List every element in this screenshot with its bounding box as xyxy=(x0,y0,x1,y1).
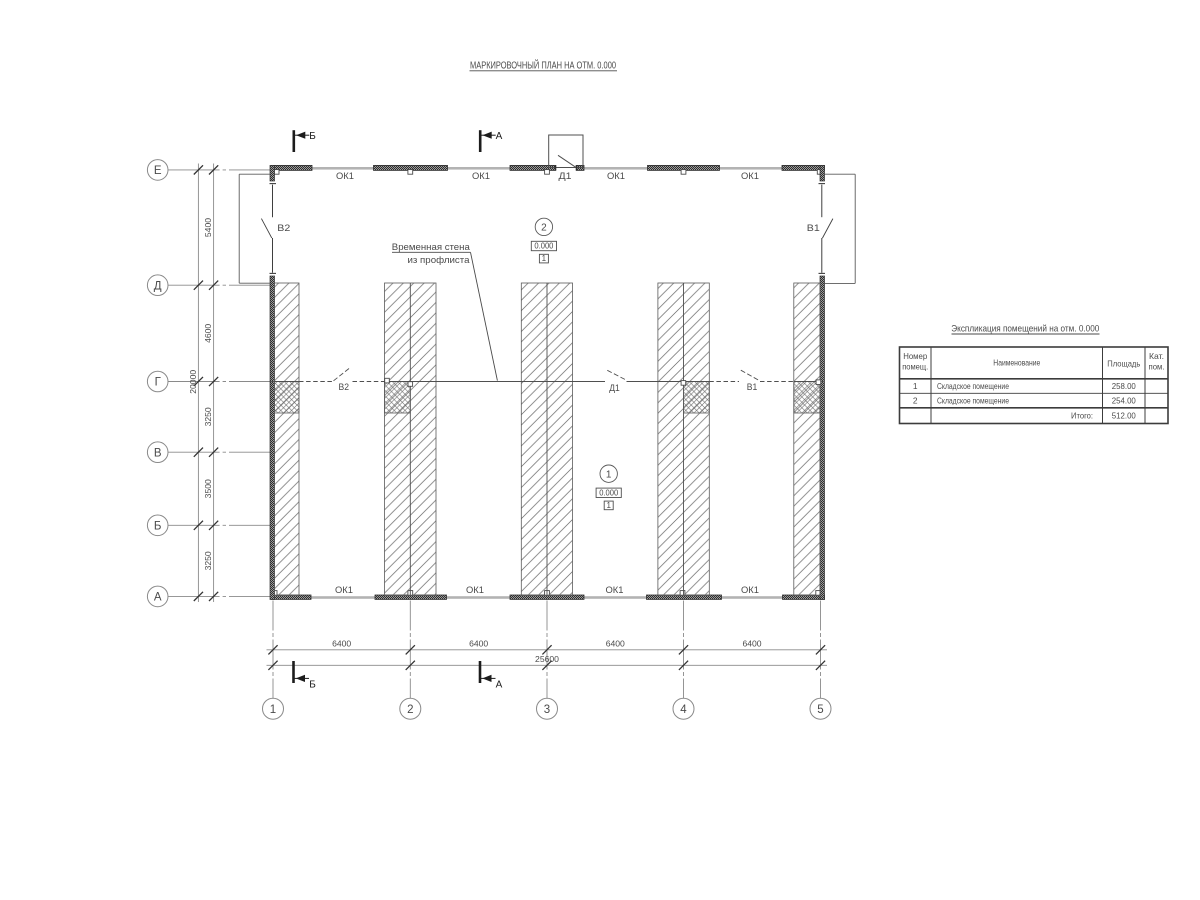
svg-text:Складское помещение: Складское помещение xyxy=(937,396,1009,406)
svg-text:2: 2 xyxy=(407,704,413,716)
svg-text:3500: 3500 xyxy=(203,479,213,498)
svg-text:Г: Г xyxy=(155,377,162,389)
svg-text:0.000: 0.000 xyxy=(534,242,554,251)
svg-text:1: 1 xyxy=(913,381,918,391)
svg-text:1: 1 xyxy=(606,469,612,480)
svg-text:МАРКИРОВОЧНЫЙ ПЛАН НА ОТМ. 0.0: МАРКИРОВОЧНЫЙ ПЛАН НА ОТМ. 0.000 xyxy=(470,59,616,72)
svg-text:6400: 6400 xyxy=(332,638,351,648)
svg-text:А: А xyxy=(154,592,162,604)
svg-text:0.000: 0.000 xyxy=(599,489,619,498)
svg-text:Б: Б xyxy=(154,521,162,533)
svg-text:Е: Е xyxy=(154,165,162,177)
svg-text:Складское помещение: Складское помещение xyxy=(937,381,1009,391)
svg-text:4600: 4600 xyxy=(203,324,213,343)
svg-text:2: 2 xyxy=(541,223,547,234)
svg-text:2: 2 xyxy=(913,396,918,406)
svg-text:Д: Д xyxy=(154,280,162,292)
svg-text:Б: Б xyxy=(309,131,316,142)
svg-text:1: 1 xyxy=(270,704,276,716)
svg-text:ОК1: ОК1 xyxy=(472,171,490,181)
svg-text:В2: В2 xyxy=(339,382,350,392)
svg-text:В2: В2 xyxy=(277,223,290,233)
svg-text:ОК1: ОК1 xyxy=(606,585,624,595)
svg-text:Кат.: Кат. xyxy=(1149,351,1164,361)
svg-text:1: 1 xyxy=(606,501,611,510)
svg-text:6400: 6400 xyxy=(469,638,488,648)
svg-text:пом.: пом. xyxy=(1149,362,1165,372)
svg-text:ОК1: ОК1 xyxy=(336,171,354,181)
svg-text:помещ.: помещ. xyxy=(902,362,928,372)
svg-text:Д1: Д1 xyxy=(559,171,572,181)
svg-text:ОК1: ОК1 xyxy=(466,585,484,595)
svg-text:Б: Б xyxy=(309,680,316,691)
svg-text:Временная стена: Временная стена xyxy=(392,241,471,252)
svg-text:Номер: Номер xyxy=(903,351,927,361)
svg-text:6400: 6400 xyxy=(742,638,761,648)
svg-text:Наименование: Наименование xyxy=(993,358,1040,368)
svg-text:А: А xyxy=(496,680,503,691)
svg-text:В: В xyxy=(154,447,162,459)
svg-text:ОК1: ОК1 xyxy=(741,585,759,595)
svg-text:254.00: 254.00 xyxy=(1112,396,1136,406)
svg-text:25600: 25600 xyxy=(535,654,559,664)
svg-text:Итого:: Итого: xyxy=(1071,411,1093,421)
svg-text:258.00: 258.00 xyxy=(1112,381,1136,391)
svg-text:ОК1: ОК1 xyxy=(741,171,759,181)
svg-text:20000: 20000 xyxy=(188,370,198,394)
svg-text:ОК1: ОК1 xyxy=(335,585,353,595)
svg-text:512.00: 512.00 xyxy=(1112,411,1136,421)
svg-text:4: 4 xyxy=(680,704,687,716)
svg-text:Экспликация помещений на отм.: Экспликация помещений на отм. 0.000 xyxy=(951,323,1099,334)
svg-text:6400: 6400 xyxy=(606,638,625,648)
svg-text:А: А xyxy=(496,131,503,142)
svg-text:3250: 3250 xyxy=(203,551,213,570)
svg-text:5: 5 xyxy=(817,704,823,716)
svg-text:3: 3 xyxy=(544,704,550,716)
svg-text:из профлиста: из профлиста xyxy=(408,254,471,265)
svg-text:Д1: Д1 xyxy=(609,383,620,393)
svg-text:Площадь: Площадь xyxy=(1107,359,1141,369)
svg-text:ОК1: ОК1 xyxy=(607,171,625,181)
svg-text:1: 1 xyxy=(542,254,547,263)
svg-text:3250: 3250 xyxy=(203,407,213,426)
svg-text:В1: В1 xyxy=(747,382,758,392)
svg-text:В1: В1 xyxy=(807,223,820,233)
svg-text:5400: 5400 xyxy=(203,218,213,237)
